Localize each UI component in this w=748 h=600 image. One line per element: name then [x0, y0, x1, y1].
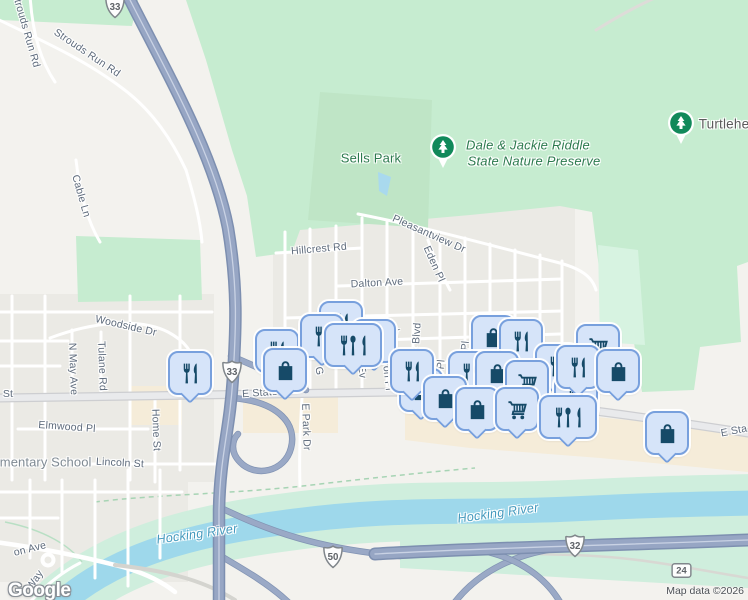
poi-marker-shopping-cart[interactable]: [495, 387, 539, 431]
shopping-cart-icon: [505, 397, 530, 422]
tree-icon: [428, 132, 458, 169]
google-logo[interactable]: Google: [8, 580, 70, 600]
poi-marker-shopping-bag[interactable]: [596, 349, 640, 393]
marker-box: [263, 348, 307, 392]
poi-marker-shopping-bag[interactable]: [455, 387, 499, 431]
marker-box: [495, 387, 539, 431]
nature-preserve-pin[interactable]: [428, 132, 458, 174]
poi-marker-restaurant[interactable]: [556, 345, 600, 389]
route-shield-24: 24: [669, 559, 694, 587]
restaurant-icon: [566, 355, 591, 380]
restaurant-icon: [178, 361, 203, 386]
label-turtlehe[interactable]: Turtlehe: [699, 117, 748, 132]
label-lincoln-st: Lincoln St: [96, 456, 145, 471]
poi-marker-restaurant-wide[interactable]: [539, 395, 597, 439]
tree-icon: [666, 108, 696, 145]
marker-box: [324, 323, 382, 367]
map-canvas[interactable]: [0, 0, 748, 600]
marker-box: [168, 351, 212, 395]
map[interactable]: Strouds Run RdStrouds Run RdCable LnWood…: [0, 0, 748, 600]
label-sells-park[interactable]: Sells Park: [341, 151, 402, 166]
label-n-may-ave: N May Ave: [66, 343, 80, 396]
restaurant-icon: [550, 405, 586, 430]
marker-box: [596, 349, 640, 393]
svg-text:33: 33: [110, 2, 121, 13]
poi-marker-restaurant-wide[interactable]: [324, 323, 382, 367]
label-st: St: [3, 388, 13, 400]
label-tulane-rd: Tulane Rd: [95, 341, 109, 391]
marker-box: [455, 387, 499, 431]
marker-box: [645, 411, 689, 455]
svg-text:24: 24: [676, 565, 687, 575]
label-state-nature-preserve[interactable]: State Nature Preserve: [468, 154, 601, 169]
label-ementary-school[interactable]: ementary School: [0, 455, 92, 470]
route-shield-50: 50: [320, 544, 346, 577]
svg-text:32: 32: [570, 541, 581, 552]
route-shield-33: 33: [102, 0, 128, 27]
restaurant-icon: [335, 333, 371, 358]
label-dale-jackie-riddle[interactable]: Dale & Jackie Riddle: [466, 138, 590, 153]
shopping-bag-icon: [273, 358, 298, 383]
poi-marker-restaurant[interactable]: [168, 351, 212, 395]
label-e-park-dr: E Park Dr: [299, 403, 313, 451]
restaurant-icon: [509, 329, 534, 354]
label-home-st: Home St: [149, 409, 162, 452]
shopping-bag-icon: [465, 397, 490, 422]
restaurant-icon: [400, 359, 425, 384]
map-attribution: Map data ©2026: [666, 585, 744, 597]
shopping-bag-icon: [433, 386, 458, 411]
route-shield-32: 32: [562, 533, 588, 566]
poi-marker-shopping-bag[interactable]: [645, 411, 689, 455]
poi-marker-shopping-bag[interactable]: [263, 348, 307, 392]
svg-text:33: 33: [227, 367, 238, 378]
marker-box: [539, 395, 597, 439]
shopping-bag-icon: [655, 421, 680, 446]
turtlehead-pin[interactable]: [666, 108, 696, 150]
marker-box: [556, 345, 600, 389]
shopping-bag-icon: [606, 359, 631, 384]
svg-text:50: 50: [328, 552, 339, 563]
route-shield-33: 33: [219, 359, 245, 392]
